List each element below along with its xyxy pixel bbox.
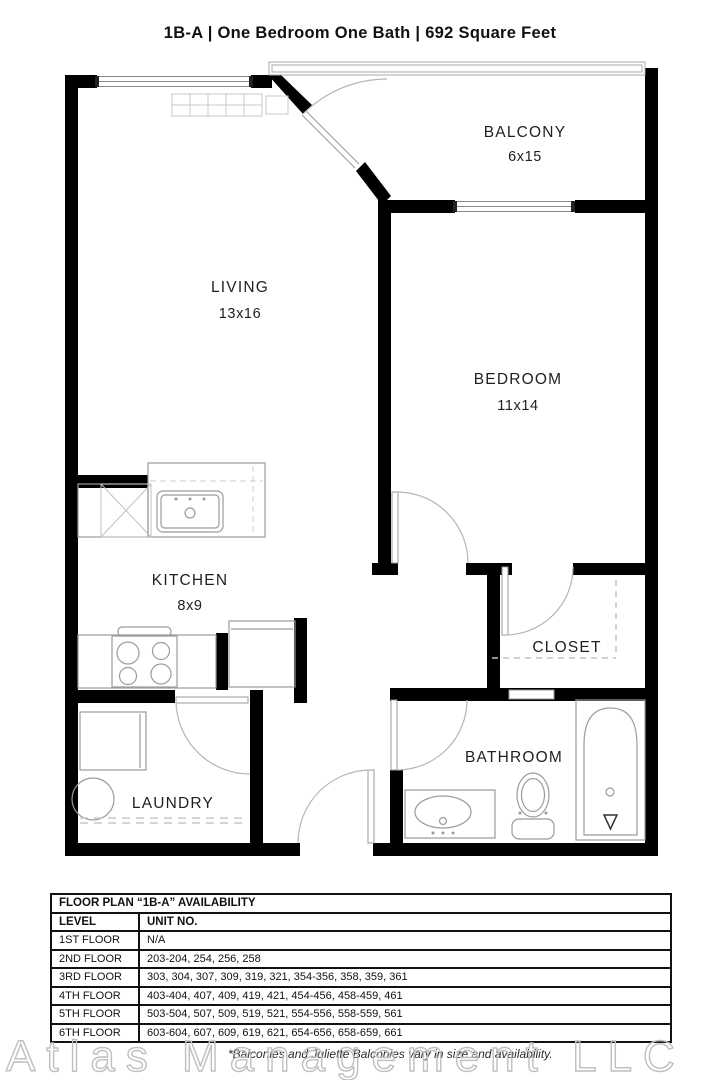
col-header-unit-no: UNIT NO. [139, 913, 671, 932]
kitchen-label: KITCHEN [152, 572, 228, 589]
dishwasher [101, 484, 151, 537]
wall-unit-grid [172, 94, 288, 116]
level-cell: 3RD FLOOR [51, 968, 139, 987]
refrigerator [229, 621, 295, 687]
availability-title-row: FLOOR PLAN “1B-A” AVAILABILITY [51, 894, 671, 913]
level-cell: 2ND FLOOR [51, 950, 139, 969]
laundry-door [176, 697, 250, 774]
closet-door [502, 567, 573, 635]
walls-layer [65, 68, 658, 856]
water-heater [72, 778, 114, 820]
bathroom-door [391, 700, 467, 770]
units-cell: 403-404, 407, 409, 419, 421, 454-456, 45… [139, 987, 671, 1006]
laundry-shelf-dashes [80, 818, 247, 823]
level-cell: 4TH FLOOR [51, 987, 139, 1006]
availability-header-row: LEVEL UNIT NO. [51, 913, 671, 932]
availability-row: 5TH FLOOR 503-504, 507, 509, 519, 521, 5… [51, 1005, 671, 1024]
units-cell: 303, 304, 307, 309, 319, 321, 354-356, 3… [139, 968, 671, 987]
units-cell: 203-204, 254, 256, 258 [139, 950, 671, 969]
balcony-dims: 6x15 [508, 149, 542, 165]
balcony-railing [269, 62, 645, 75]
availability-row: 1ST FLOOR N/A [51, 931, 671, 950]
kitchen-counter [78, 463, 265, 537]
entry-door [298, 770, 374, 843]
bedroom-dims: 11x14 [497, 398, 538, 414]
living-label: LIVING [211, 279, 269, 296]
closet-label: CLOSET [532, 639, 601, 656]
units-cell: 503-504, 507, 509, 519, 521, 554-556, 55… [139, 1005, 671, 1024]
floorplan-page: 1B-A | One Bedroom One Bath | 692 Square… [0, 0, 720, 1080]
level-cell: 6TH FLOOR [51, 1024, 139, 1043]
balcony-disclaimer: *Balconies and Juliette Balconies vary i… [228, 1047, 553, 1061]
bathtub [576, 700, 645, 840]
room-labels: BALCONY 6x15 LIVING 13x16 BEDROOM 11x14 … [132, 124, 602, 812]
bedroom-label: BEDROOM [474, 371, 563, 388]
availability-table: FLOOR PLAN “1B-A” AVAILABILITY LEVEL UNI… [50, 893, 672, 1043]
bathroom-vanity [405, 790, 495, 838]
bedroom-window [453, 200, 575, 213]
level-cell: 1ST FLOOR [51, 931, 139, 950]
bathroom-niche [509, 690, 554, 699]
kitchen-sink [157, 491, 223, 532]
laundry-label: LAUNDRY [132, 795, 214, 812]
bedroom-door [392, 492, 468, 563]
col-header-level: LEVEL [51, 913, 139, 932]
kitchen-dims: 8x9 [177, 598, 202, 614]
kitchen-lower-counter [78, 635, 216, 688]
availability-row: 3RD FLOOR 303, 304, 307, 309, 319, 321, … [51, 968, 671, 987]
floorplan-drawing: BALCONY 6x15 LIVING 13x16 BEDROOM 11x14 … [0, 0, 720, 880]
units-cell: 603-604, 607, 609, 619, 621, 654-656, 65… [139, 1024, 671, 1043]
availability-row: 4TH FLOOR 403-404, 407, 409, 419, 421, 4… [51, 987, 671, 1006]
balcony-label: BALCONY [484, 124, 566, 141]
level-cell: 5TH FLOOR [51, 1005, 139, 1024]
balcony-door [302, 79, 387, 168]
availability-table-title: FLOOR PLAN “1B-A” AVAILABILITY [51, 894, 671, 913]
living-window [95, 75, 253, 88]
living-dims: 13x16 [219, 306, 262, 322]
stove [112, 627, 177, 687]
availability-row: 6TH FLOOR 603-604, 607, 609, 619, 621, 6… [51, 1024, 671, 1043]
washer-dryer [80, 712, 146, 770]
availability-row: 2ND FLOOR 203-204, 254, 256, 258 [51, 950, 671, 969]
bathroom-label: BATHROOM [465, 749, 563, 766]
units-cell: N/A [139, 931, 671, 950]
toilet [512, 773, 554, 839]
